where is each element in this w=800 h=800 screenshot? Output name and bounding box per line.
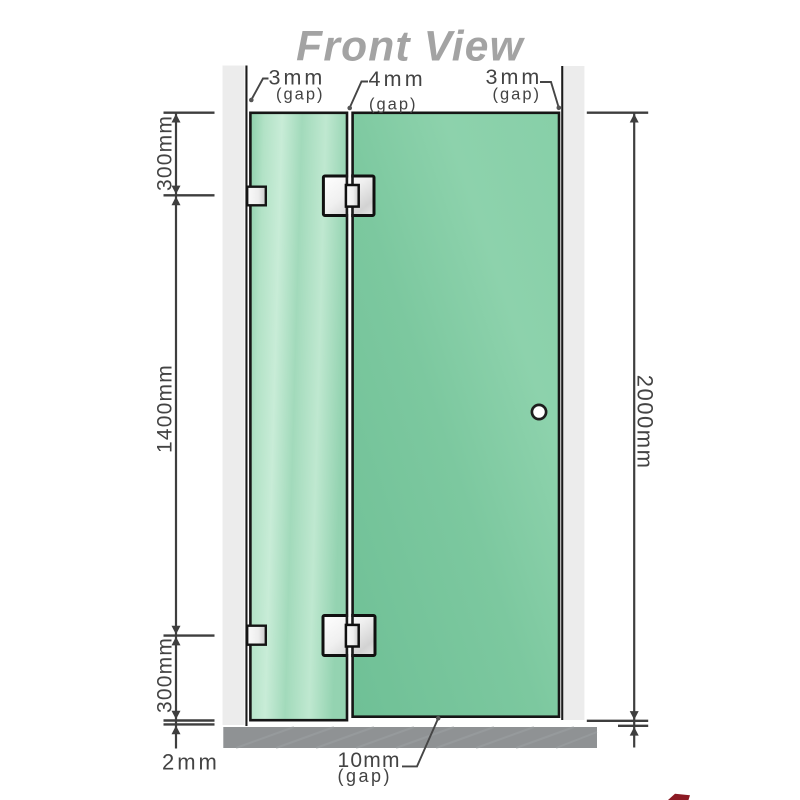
svg-text:(gap): (gap) [338, 766, 393, 786]
svg-text:4mm: 4mm [369, 67, 426, 91]
svg-text:(gap): (gap) [493, 86, 542, 104]
svg-text:Front View: Front View [296, 24, 525, 71]
svg-text:300mm: 300mm [154, 115, 177, 191]
svg-text:(gap): (gap) [276, 86, 325, 104]
svg-text:2000mm: 2000mm [633, 375, 658, 470]
svg-text:(gap): (gap) [369, 95, 418, 113]
svg-text:300mm: 300mm [154, 637, 177, 713]
svg-text:2mm: 2mm [162, 750, 220, 775]
svg-text:1400mm: 1400mm [154, 364, 177, 453]
